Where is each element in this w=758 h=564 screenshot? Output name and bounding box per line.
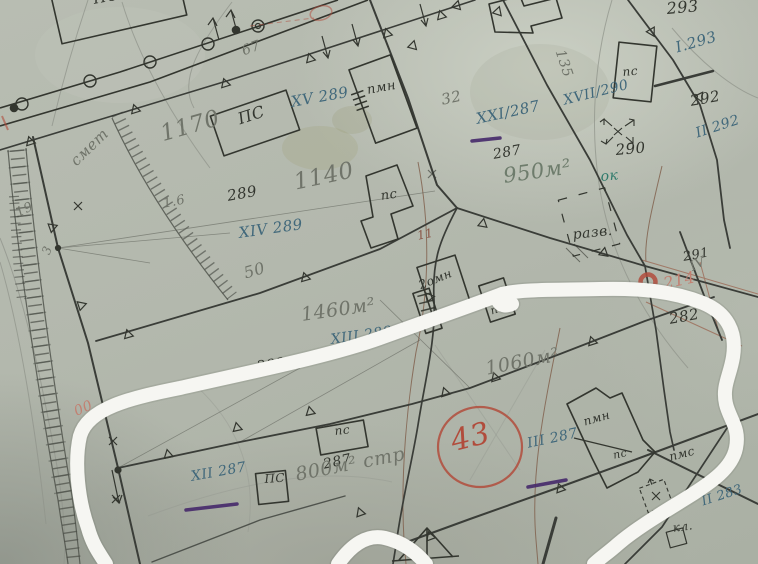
measure-11: 11 xyxy=(416,227,434,242)
lot-label-xxi-287: XXI/287 xyxy=(475,99,541,127)
building-label-ps-ne: пс xyxy=(622,65,638,78)
area-label-1170: 1170 xyxy=(158,107,223,146)
measure-67: 67 xyxy=(240,39,262,59)
lot-label-xv-289: XV 289 xyxy=(290,85,350,110)
building-label-pmn-top: пмн xyxy=(366,79,397,97)
area-label-800: 800м² стр xyxy=(294,445,407,485)
note-smet: смет xyxy=(68,126,111,169)
lot-label-xiv-289: XIV 289 xyxy=(238,217,304,241)
building-label-ps-mid: пс xyxy=(334,423,351,437)
lot-label-ii-292: II 292 xyxy=(694,113,741,140)
measure-3-lower: 3 xyxy=(70,480,78,492)
well-mark-ok: ок xyxy=(600,168,619,183)
label-kl: кл. xyxy=(672,519,694,534)
cadastral-map-scan: ПС ПС пмн пс пс 293 292 290 287 289 291 … xyxy=(0,0,758,564)
area-label-950: 950м² xyxy=(502,156,573,186)
red-number-43: 43 xyxy=(448,419,493,458)
building-label-pmn-se: пмн xyxy=(582,409,611,428)
parcel-number-293: 293 xyxy=(666,0,699,17)
parcel-number-290: 290 xyxy=(615,140,646,158)
building-label-ps-se: пс xyxy=(612,447,628,461)
ruin-label-razv: разв. xyxy=(572,224,613,242)
map-labels-layer: ПС ПС пмн пс пс 293 292 290 287 289 291 … xyxy=(0,0,758,564)
building-label-ps-nw: ПС xyxy=(236,104,267,128)
measure-32: 32 xyxy=(440,89,463,108)
area-label-1460: 1460м² xyxy=(300,296,377,325)
lot-label-i-293: I.293 xyxy=(674,29,718,55)
lot-label-xii-287: XII 287 xyxy=(190,460,247,483)
measure-19: 19 xyxy=(14,200,35,219)
area-label-1140: 1140 xyxy=(292,159,356,194)
measure-135: 135 xyxy=(553,48,575,79)
building-label-pms: пмс xyxy=(668,445,696,463)
red-number-214: 214 xyxy=(662,269,697,291)
parcel-number-287-top: 287 xyxy=(492,143,522,162)
area-label-1060: 1060м² xyxy=(484,346,561,379)
parcel-number-282: 282 xyxy=(668,307,700,327)
lot-label-iii-287: III 287 xyxy=(526,426,579,450)
building-label-ps-top: ПС xyxy=(92,0,120,7)
building-label-2omn: 2омн xyxy=(417,267,454,291)
measure-50: 50 xyxy=(242,260,267,281)
lot-label-ii-283: II 283 xyxy=(700,483,744,508)
lot-label-xiii-288: XIII 288 xyxy=(330,324,393,346)
measure-3-upper: 3 xyxy=(40,244,54,256)
parcel-number-288: 288 xyxy=(256,356,286,374)
building-label-ps-small: пс xyxy=(489,302,506,317)
parcel-number-289: 289 xyxy=(226,184,258,204)
building-label-ps-sw: ПС xyxy=(264,472,285,485)
measure-1-6: 1.6 xyxy=(162,193,186,210)
lot-label-xvii-290: XVII/290 xyxy=(562,78,630,108)
building-label-ps-center: пс xyxy=(380,188,398,203)
parcel-number-292: 292 xyxy=(689,89,721,109)
red-number-00: 00 xyxy=(72,398,95,418)
